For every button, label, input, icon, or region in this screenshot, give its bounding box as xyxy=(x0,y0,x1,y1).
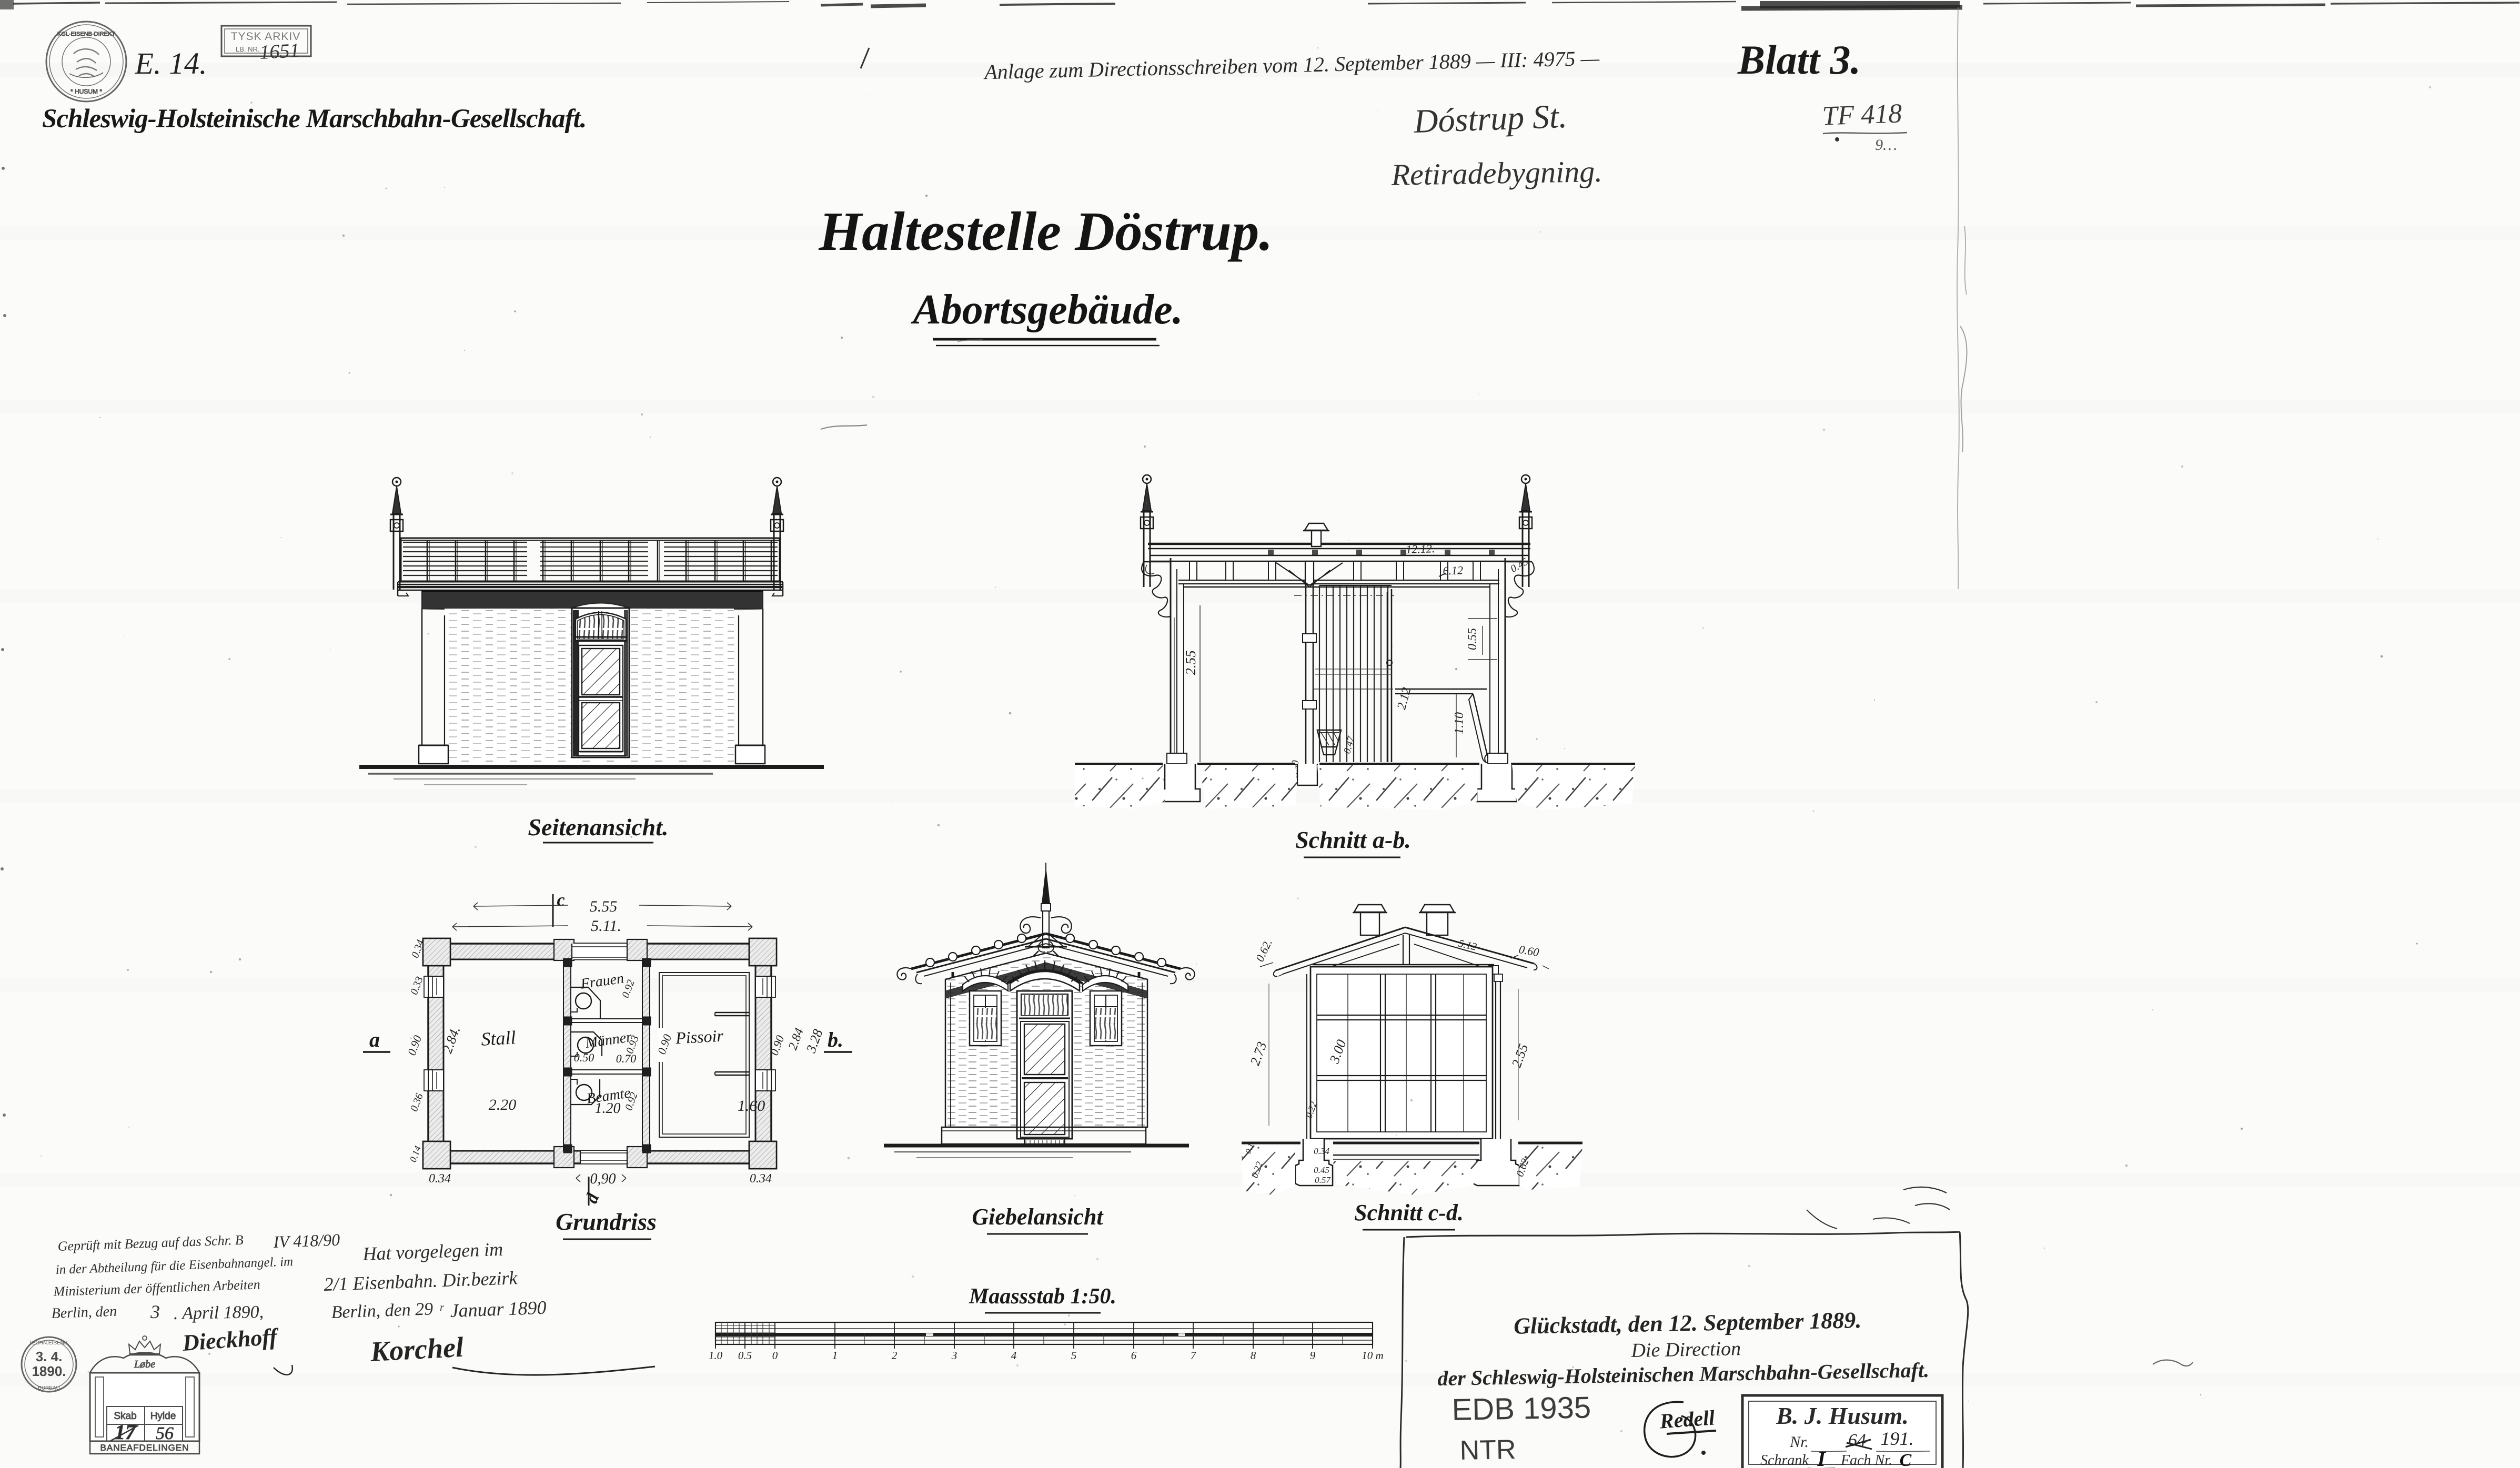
svg-text:0.57: 0.57 xyxy=(1315,1175,1331,1185)
svg-text:2: 2 xyxy=(892,1349,898,1362)
svg-text:0: 0 xyxy=(772,1349,778,1362)
svg-text:8: 8 xyxy=(1251,1349,1256,1362)
svg-text:Berlin, den 29: Berlin, den 29 xyxy=(331,1299,434,1322)
svg-text:Schrank: Schrank xyxy=(1760,1452,1809,1468)
svg-text:Stall: Stall xyxy=(480,1027,516,1049)
svg-text:6: 6 xyxy=(1131,1349,1137,1362)
svg-text:5.11.: 5.11. xyxy=(591,917,621,935)
svg-text:. April 1890,: . April 1890, xyxy=(173,1302,264,1323)
svg-text:Schnitt a-b.: Schnitt a-b. xyxy=(1295,826,1411,853)
svg-text:EDB 1935: EDB 1935 xyxy=(1451,1390,1591,1427)
svg-text:1890.: 1890. xyxy=(32,1363,66,1379)
svg-text:Nr.: Nr. xyxy=(1789,1433,1809,1451)
svg-text:0.70: 0.70 xyxy=(616,1052,637,1065)
svg-text:0.34: 0.34 xyxy=(429,1172,451,1186)
svg-text:* HUSUM *: * HUSUM * xyxy=(70,88,102,95)
svg-text:0.50: 0.50 xyxy=(574,1051,594,1064)
svg-text:0.5: 0.5 xyxy=(738,1349,752,1362)
svg-text:I: I xyxy=(1817,1447,1826,1468)
svg-text:1651: 1651 xyxy=(259,39,300,64)
svg-text:7: 7 xyxy=(1191,1349,1197,1362)
svg-text:0.55: 0.55 xyxy=(1466,628,1479,650)
svg-text:0.34: 0.34 xyxy=(1314,1146,1329,1156)
svg-text:r: r xyxy=(440,1302,444,1313)
svg-text:0,90: 0,90 xyxy=(590,1171,616,1187)
svg-text:191.: 191. xyxy=(1881,1428,1914,1449)
svg-text:Schnitt c-d.: Schnitt c-d. xyxy=(1354,1200,1464,1226)
svg-text:Berlin, den: Berlin, den xyxy=(51,1303,117,1322)
svg-text:0.45: 0.45 xyxy=(1314,1165,1329,1175)
svg-text:56: 56 xyxy=(156,1424,174,1443)
svg-text:Schleswig-Holsteinische Marsch: Schleswig-Holsteinische Marschbahn-Gesel… xyxy=(42,104,586,134)
svg-text:1: 1 xyxy=(832,1349,838,1362)
svg-text:6.12: 6.12 xyxy=(1443,563,1463,577)
svg-text:Fach Nr.: Fach Nr. xyxy=(1840,1452,1892,1468)
svg-text:Retiradebygning.: Retiradebygning. xyxy=(1390,154,1602,192)
svg-text:3: 3 xyxy=(951,1349,957,1362)
svg-text:2.55: 2.55 xyxy=(1183,650,1198,675)
svg-text:BUREAU: BUREAU xyxy=(38,1385,60,1391)
svg-text:BANEAFDELINGEN: BANEAFDELINGEN xyxy=(100,1443,189,1453)
svg-text:b.: b. xyxy=(828,1028,843,1051)
svg-text:5.55: 5.55 xyxy=(590,898,618,915)
svg-text:3: 3 xyxy=(150,1301,160,1322)
svg-text:1.20: 1.20 xyxy=(595,1100,621,1117)
svg-text:Pissoir: Pissoir xyxy=(674,1026,724,1048)
svg-text:4: 4 xyxy=(1011,1349,1017,1362)
svg-text:1.60: 1.60 xyxy=(738,1097,765,1115)
svg-text:Dóstrup St.: Dóstrup St. xyxy=(1413,97,1568,140)
svg-text:NTR: NTR xyxy=(1459,1434,1516,1466)
svg-text:2.20: 2.20 xyxy=(489,1096,517,1113)
svg-text:Redell: Redell xyxy=(1658,1405,1716,1433)
svg-text:B. J. Husum.: B. J. Husum. xyxy=(1776,1402,1909,1429)
svg-text:9: 9 xyxy=(1310,1349,1316,1362)
svg-text:C: C xyxy=(1900,1451,1912,1468)
svg-text:5: 5 xyxy=(1071,1349,1077,1362)
svg-text:Blatt 3.: Blatt 3. xyxy=(1737,37,1861,83)
svg-text:c: c xyxy=(557,890,565,910)
svg-text:3. 4.: 3. 4. xyxy=(36,1349,63,1364)
svg-text:9…: 9… xyxy=(1875,136,1897,154)
svg-text:1.10: 1.10 xyxy=(1453,712,1466,734)
svg-text:Grundriss: Grundriss xyxy=(556,1208,657,1235)
svg-text:Haltestelle Döstrup.: Haltestelle Döstrup. xyxy=(818,200,1273,262)
svg-text:Die Direction: Die Direction xyxy=(1630,1338,1741,1362)
svg-text:KGL·EISENB·DIREKT: KGL·EISENB·DIREKT xyxy=(57,31,115,37)
svg-text:Abortsgebäude.: Abortsgebäude. xyxy=(910,287,1183,333)
svg-text:12.12.: 12.12. xyxy=(1406,542,1435,556)
svg-text:Hylde: Hylde xyxy=(150,1411,176,1422)
svg-text:E. 14.: E. 14. xyxy=(135,46,207,80)
svg-text:1.0: 1.0 xyxy=(709,1349,723,1362)
svg-text:IV 418/90: IV 418/90 xyxy=(273,1230,340,1251)
svg-text:TECHN.EISENB.: TECHN.EISENB. xyxy=(29,1340,69,1346)
svg-text:Korchel: Korchel xyxy=(369,1331,464,1368)
svg-text:Løbe: Løbe xyxy=(134,1359,155,1370)
svg-text:10 m: 10 m xyxy=(1362,1349,1383,1362)
svg-text:LB. NR.: LB. NR. xyxy=(236,45,260,53)
svg-text:Maassstab 1:50.: Maassstab 1:50. xyxy=(969,1284,1116,1309)
svg-text:0.34: 0.34 xyxy=(750,1172,772,1186)
svg-text:Giebelansicht: Giebelansicht xyxy=(972,1204,1104,1230)
svg-text:a: a xyxy=(369,1028,380,1051)
svg-text:TF 418: TF 418 xyxy=(1822,98,1903,131)
svg-text:Seitenansicht.: Seitenansicht. xyxy=(528,814,668,841)
svg-text:Januar 1890: Januar 1890 xyxy=(450,1297,547,1321)
